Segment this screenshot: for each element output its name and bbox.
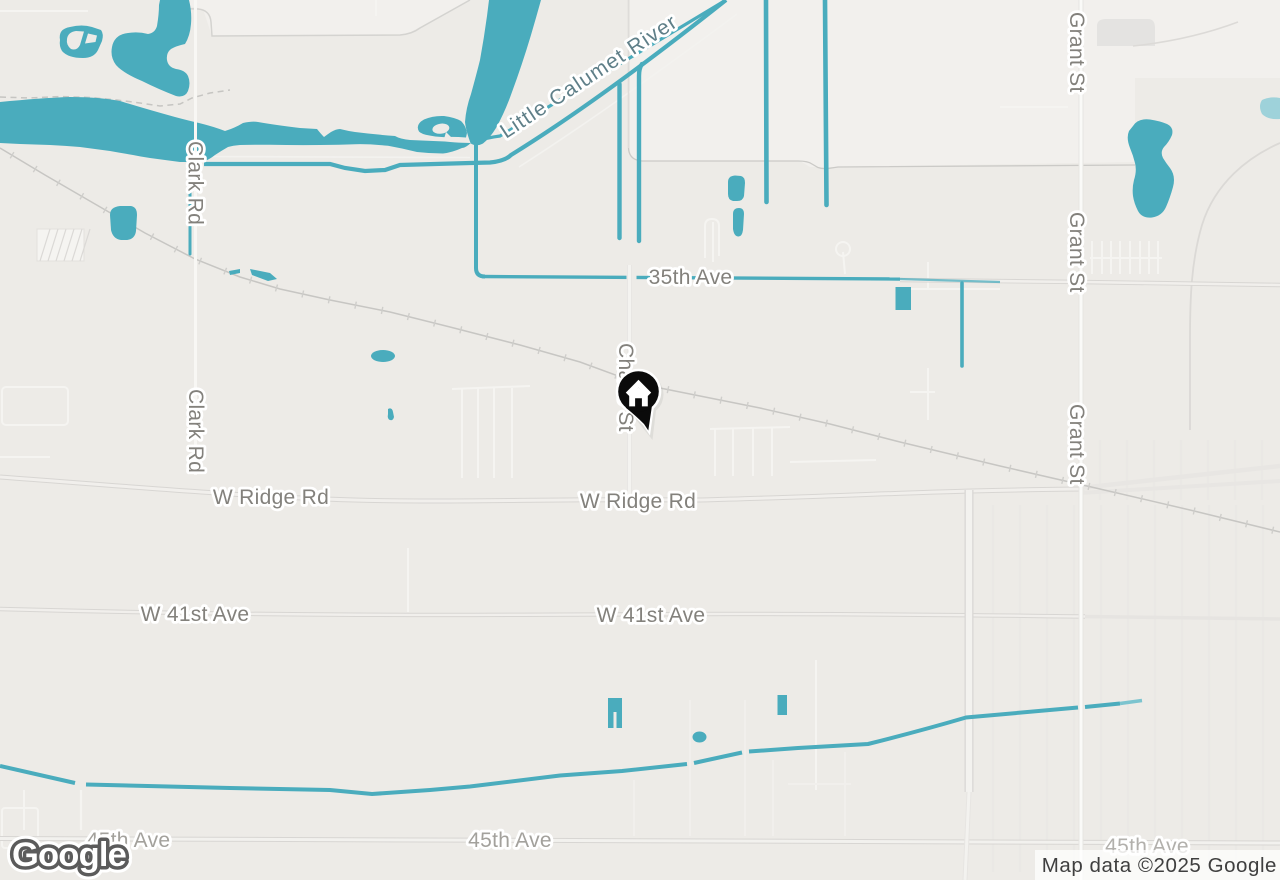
svg-text:Clark Rd: Clark Rd	[184, 389, 207, 473]
svg-text:Grant St: Grant St	[1065, 212, 1088, 293]
svg-text:Grant St: Grant St	[1065, 12, 1088, 93]
svg-text:35th Ave: 35th Ave	[649, 266, 733, 289]
svg-text:W Ridge Rd: W Ridge Rd	[580, 490, 696, 513]
svg-text:W Ridge Rd: W Ridge Rd	[213, 486, 329, 509]
svg-text:W 41st Ave: W 41st Ave	[141, 603, 250, 626]
svg-text:Clark Rd: Clark Rd	[184, 141, 207, 225]
svg-text:45th Ave: 45th Ave	[468, 829, 552, 852]
svg-text:W 41st Ave: W 41st Ave	[597, 604, 706, 627]
svg-text:Grant St: Grant St	[1065, 404, 1088, 485]
svg-text:Google: Google	[12, 836, 127, 874]
svg-text:Map data ©2025 Google: Map data ©2025 Google	[1042, 854, 1277, 877]
